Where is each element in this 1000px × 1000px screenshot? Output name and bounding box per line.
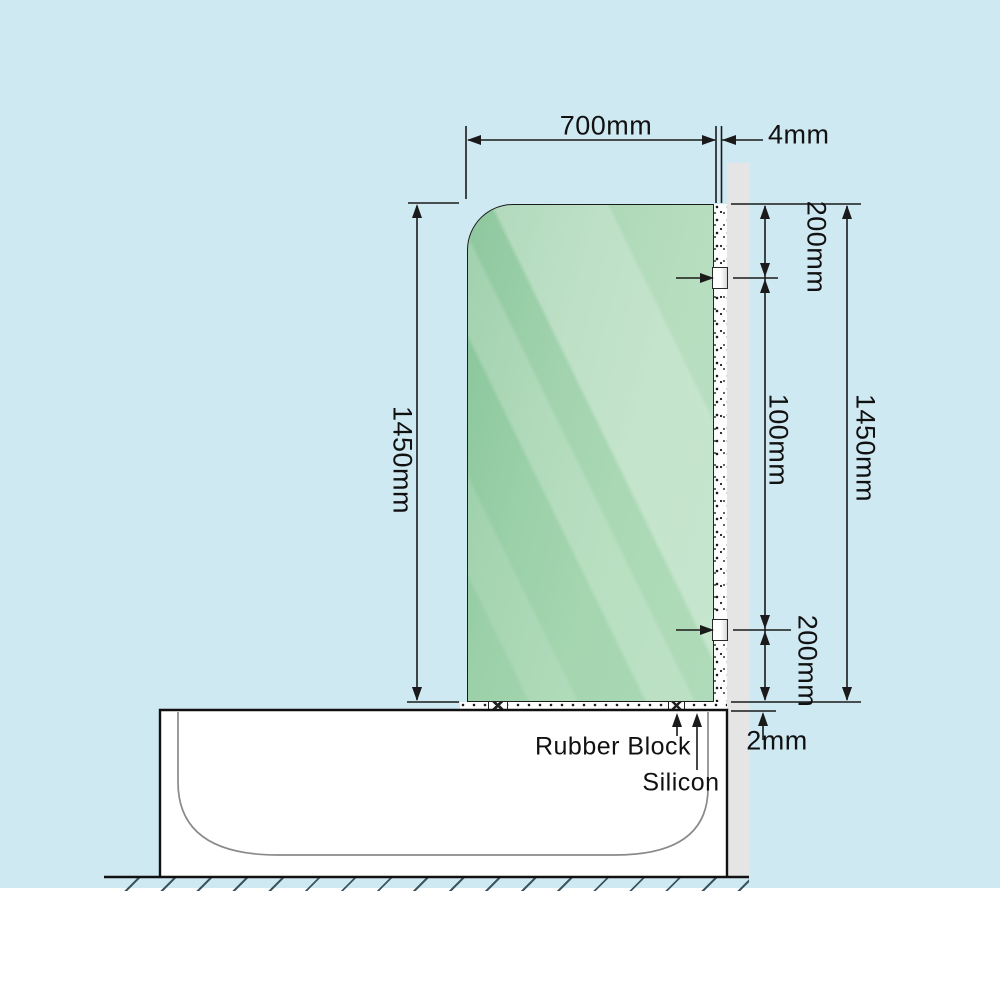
rubber-block-label: Rubber Block [535, 735, 691, 760]
dim-wall-gap-label: 4mm [768, 122, 830, 149]
silicon-label: Silicon [642, 771, 719, 796]
dim-bottom-bracket-offset-label: 200mm [794, 615, 821, 708]
dim-bottom-gap-label: 2mm [746, 728, 808, 755]
dim-height-right-label: 1450mm [852, 394, 879, 502]
diagram-canvas: 700mm 4mm 200mm 100mm 200mm 1450mm 1450m… [0, 0, 1000, 1000]
dim-glass-width-label: 700mm [560, 113, 653, 140]
dim-between-brackets-label: 100mm [765, 394, 792, 487]
dim-top-bracket-offset-label: 200mm [803, 201, 830, 294]
dim-height-left-label: 1450mm [389, 406, 416, 514]
